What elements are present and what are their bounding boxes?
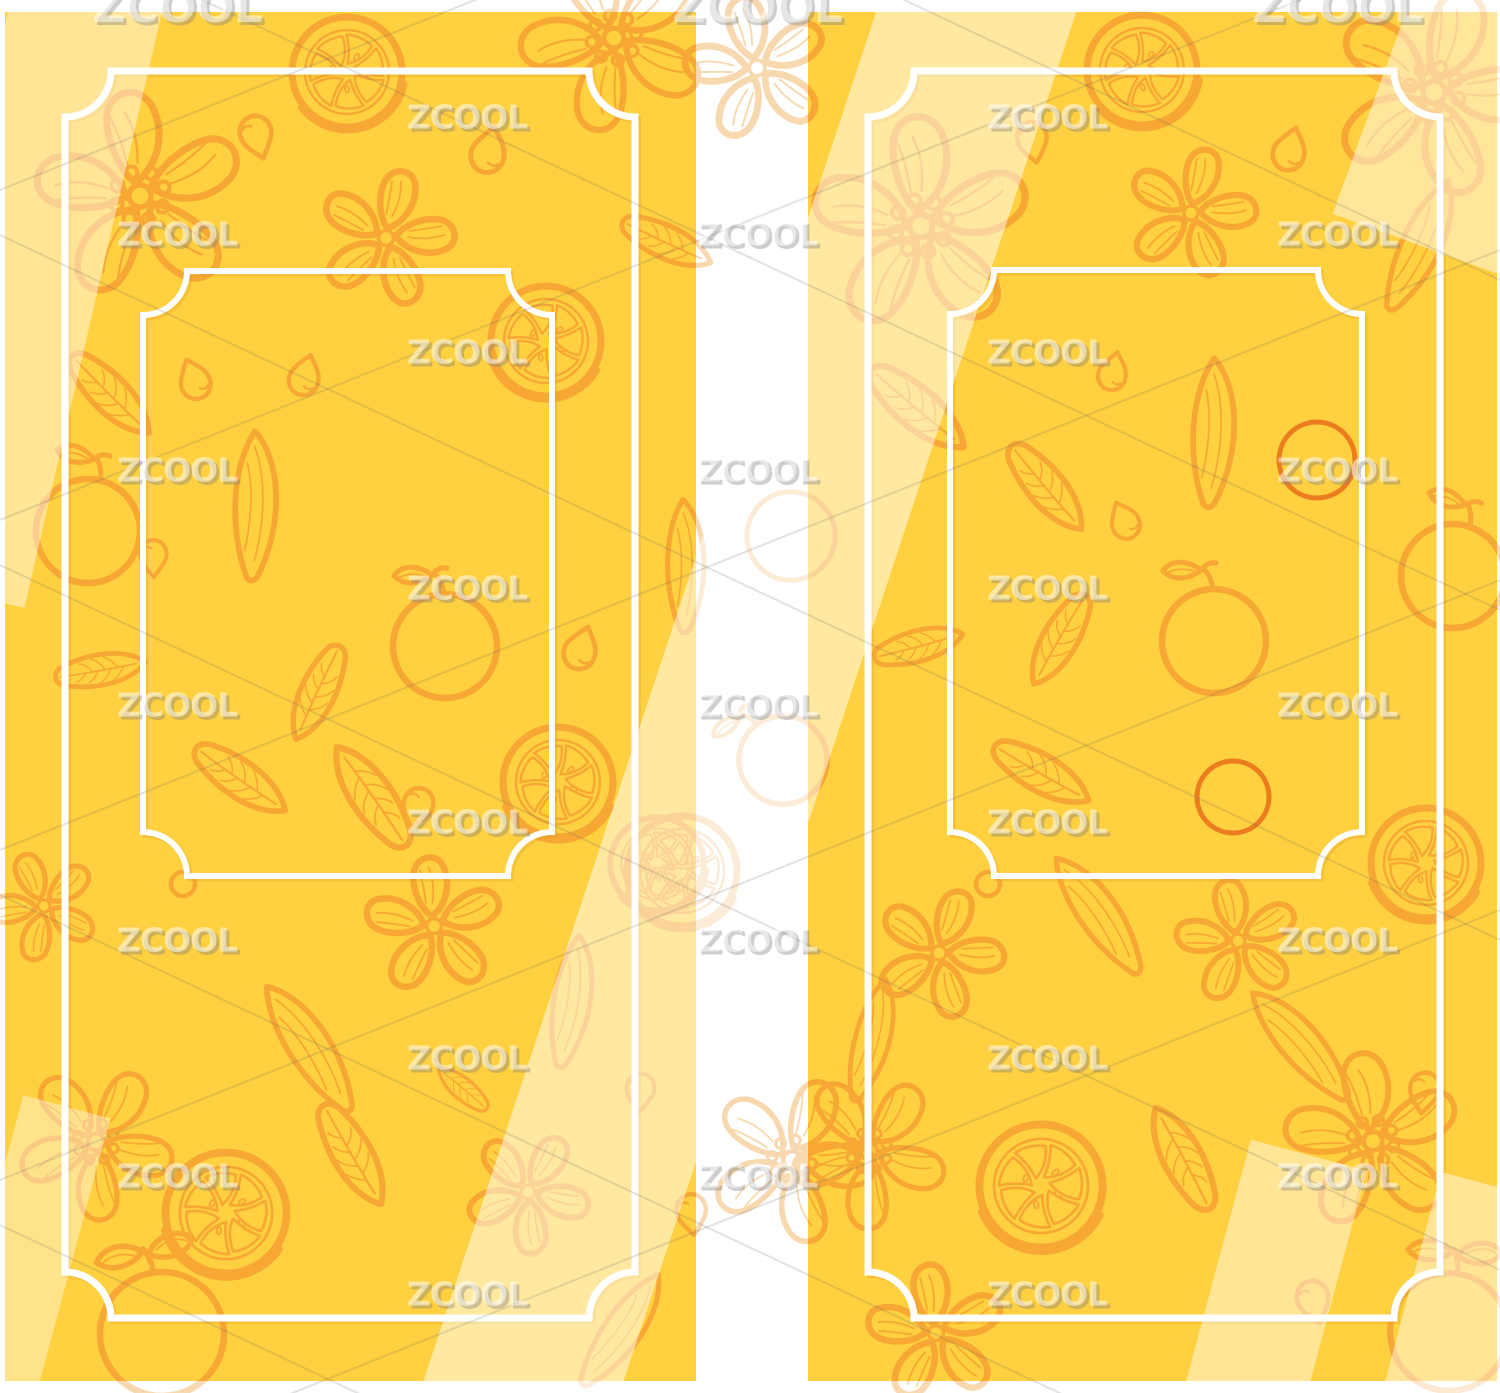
stock-preview-canvas: ZCOOLZCOOLZCOOLZCOOLZCOOLZCOOLZCOOLZCOOL… [0,0,1500,1393]
citrus-banner-artwork [0,0,1500,1393]
